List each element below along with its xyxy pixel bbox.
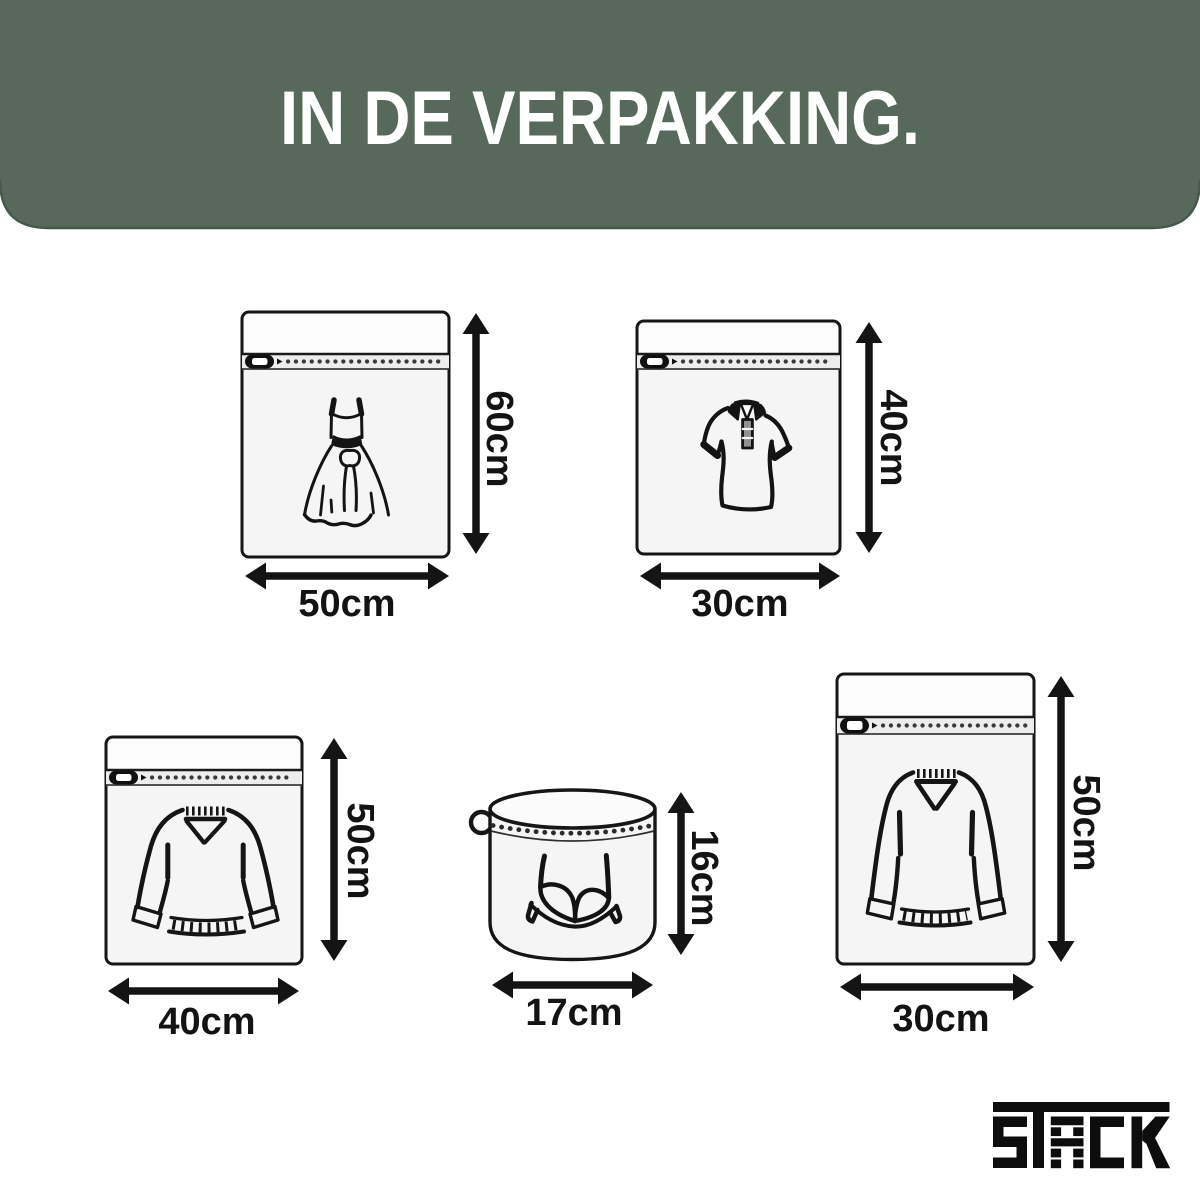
svg-text:30cm: 30cm <box>691 583 788 625</box>
svg-text:50cm: 50cm <box>1065 774 1107 871</box>
svg-text:16cm: 16cm <box>683 829 725 926</box>
svg-text:60cm: 60cm <box>478 390 520 487</box>
svg-text:50cm: 50cm <box>298 583 395 625</box>
svg-text:40cm: 40cm <box>872 389 914 486</box>
svg-text:50cm: 50cm <box>339 802 381 899</box>
svg-text:IN DE VERPAKKING.: IN DE VERPAKKING. <box>280 76 920 161</box>
svg-text:17cm: 17cm <box>525 992 622 1034</box>
svg-text:40cm: 40cm <box>158 1001 255 1043</box>
svg-text:30cm: 30cm <box>892 998 989 1040</box>
